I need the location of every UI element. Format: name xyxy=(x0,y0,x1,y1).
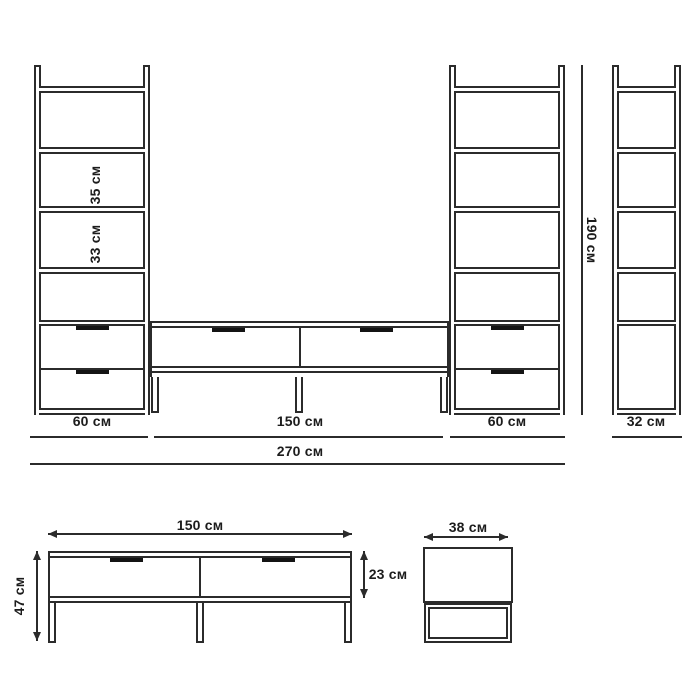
bench-side-base-frame-inner xyxy=(428,607,508,639)
right-column-left-rail xyxy=(449,65,456,415)
drawer-handle xyxy=(262,558,295,562)
tv-bench-elevation xyxy=(150,321,449,413)
drawer-handle xyxy=(110,558,143,562)
side-profile-column xyxy=(612,65,681,415)
shelf xyxy=(39,86,145,93)
bench-leg xyxy=(344,603,352,643)
bench-front-width-arrow xyxy=(48,530,352,538)
left-column-left-rail xyxy=(34,65,41,415)
bench-side-depth-arrow xyxy=(424,533,508,541)
bench-front-view xyxy=(48,551,352,643)
bench-side-base-frame xyxy=(424,603,512,643)
shelf-spacing-label-33: 33 см xyxy=(87,204,103,284)
shelf xyxy=(617,147,676,154)
shelf xyxy=(454,267,560,274)
height-dimension-label: 190 см xyxy=(584,200,600,280)
tv-bench-dimension-line xyxy=(154,436,443,438)
bench-leg xyxy=(48,603,56,643)
left-column: 35 см 33 см xyxy=(34,65,150,415)
right-column-dimension-line xyxy=(450,436,565,438)
shelf xyxy=(617,320,676,326)
right-column xyxy=(449,65,565,415)
shelf xyxy=(617,206,676,213)
bench-height-arrow xyxy=(33,551,41,641)
side-profile-left-rail xyxy=(612,65,619,415)
bench-front-top-panel xyxy=(50,551,350,558)
side-profile-depth-label: 32 см xyxy=(606,413,686,429)
total-width-dimension-line xyxy=(30,463,565,465)
side-profile-right-rail xyxy=(674,65,681,415)
drawer-handle xyxy=(491,370,524,374)
bench-top-panel xyxy=(152,321,447,328)
left-column-width-label: 60 см xyxy=(52,413,132,429)
bench-leg xyxy=(295,377,303,413)
left-column-dimension-line xyxy=(30,436,148,438)
bench-leg xyxy=(196,603,204,643)
drawer-handle xyxy=(360,328,393,332)
bench-side-body xyxy=(423,547,513,603)
furniture-dimension-diagram: 35 см 33 см 190 см xyxy=(0,0,700,700)
bench-leg xyxy=(151,377,159,413)
bench-front-cabinet xyxy=(48,551,352,603)
left-column-right-rail xyxy=(143,65,150,415)
shelf xyxy=(454,206,560,213)
bench-bottom-panel xyxy=(152,366,447,373)
right-column-width-label: 60 см xyxy=(467,413,547,429)
bench-front-drawer-divider xyxy=(199,558,201,599)
bench-cabinet xyxy=(150,321,449,377)
drawer-height-label: 23 см xyxy=(348,566,428,582)
right-column-right-rail xyxy=(558,65,565,415)
shelf xyxy=(454,147,560,154)
shelf xyxy=(454,86,560,93)
drawer-handle xyxy=(491,326,524,330)
bench-front-bottom-panel xyxy=(50,596,350,603)
drawer-handle xyxy=(212,328,245,332)
height-dimension-line xyxy=(581,65,583,415)
bench-leg xyxy=(440,377,448,413)
side-profile-dimension-line xyxy=(612,436,682,438)
bench-height-label: 47 см xyxy=(11,556,27,636)
drawer-handle xyxy=(76,326,109,330)
tv-bench-width-label: 150 см xyxy=(260,413,340,429)
total-width-label: 270 см xyxy=(260,443,340,459)
shelf xyxy=(617,267,676,274)
drawer-handle xyxy=(76,370,109,374)
shelf xyxy=(617,86,676,93)
